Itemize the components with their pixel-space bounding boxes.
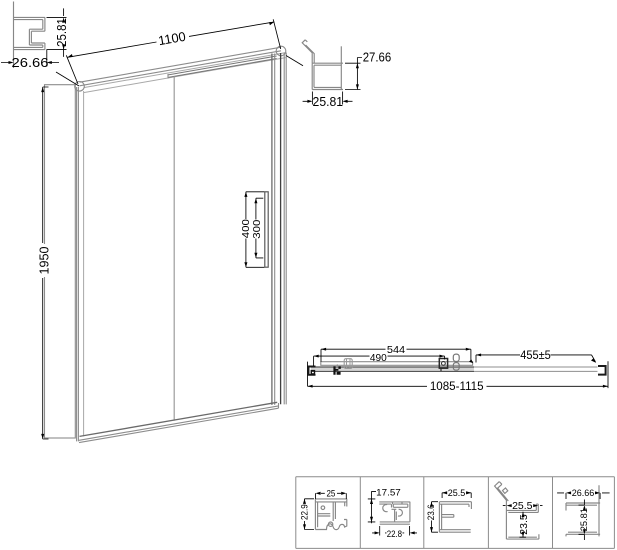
svg-text:490: 490 [370, 352, 387, 364]
svg-text:25.5: 25.5 [448, 488, 466, 498]
svg-text:300: 300 [251, 219, 263, 238]
svg-text:26.66: 26.66 [572, 488, 595, 498]
svg-text:1950: 1950 [37, 247, 52, 275]
svg-text:23.5: 23.5 [518, 514, 530, 535]
svg-text:455±5: 455±5 [520, 350, 551, 362]
svg-text:25: 25 [326, 488, 335, 498]
svg-text:27.66: 27.66 [363, 51, 392, 65]
svg-text:22.9: 22.9 [300, 504, 310, 520]
svg-text:25.81: 25.81 [54, 18, 69, 47]
svg-text:544: 544 [387, 344, 405, 356]
svg-text:26.66: 26.66 [12, 56, 49, 70]
svg-text:23.6: 23.6 [426, 504, 436, 520]
svg-text:1085-1115: 1085-1115 [430, 380, 484, 393]
svg-text:22.8: 22.8 [387, 529, 402, 539]
svg-text:25.5: 25.5 [512, 500, 533, 512]
svg-text:25.81: 25.81 [313, 95, 344, 109]
svg-text:17.57: 17.57 [376, 488, 401, 498]
svg-text:25.81: 25.81 [579, 508, 589, 531]
